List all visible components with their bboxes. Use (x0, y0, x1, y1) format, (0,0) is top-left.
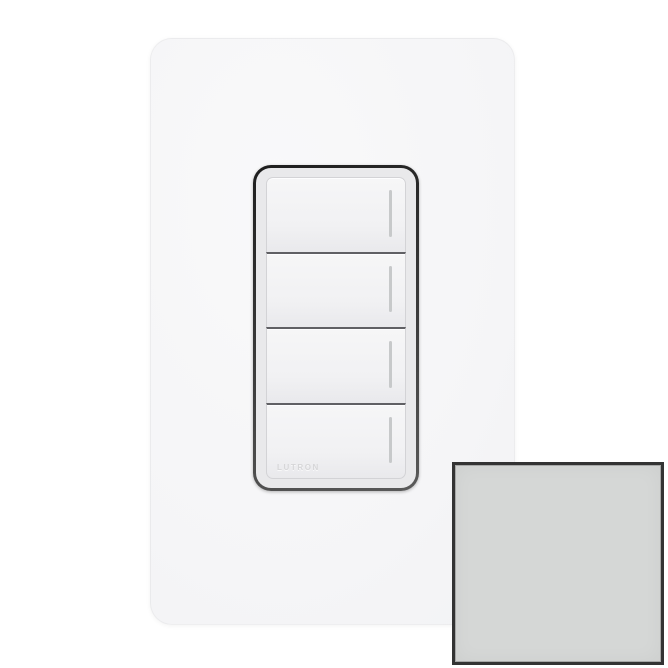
keypad-button-2[interactable] (266, 252, 406, 328)
keypad-face: LUTRON (256, 168, 416, 488)
led-indicator-slot (389, 266, 392, 312)
keypad: LUTRON (253, 165, 419, 491)
brand-engraving-text: LUTRON (277, 464, 320, 472)
product-image: LUTRON (0, 0, 668, 668)
led-indicator-slot (389, 190, 392, 236)
keypad-button-stack: LUTRON (266, 177, 406, 479)
keypad-button-1[interactable] (266, 177, 406, 252)
keypad-button-4[interactable]: LUTRON (266, 403, 406, 480)
led-indicator-slot (389, 341, 392, 387)
finish-color-swatch[interactable] (452, 462, 664, 665)
keypad-button-3[interactable] (266, 327, 406, 403)
led-indicator-slot (389, 417, 392, 463)
